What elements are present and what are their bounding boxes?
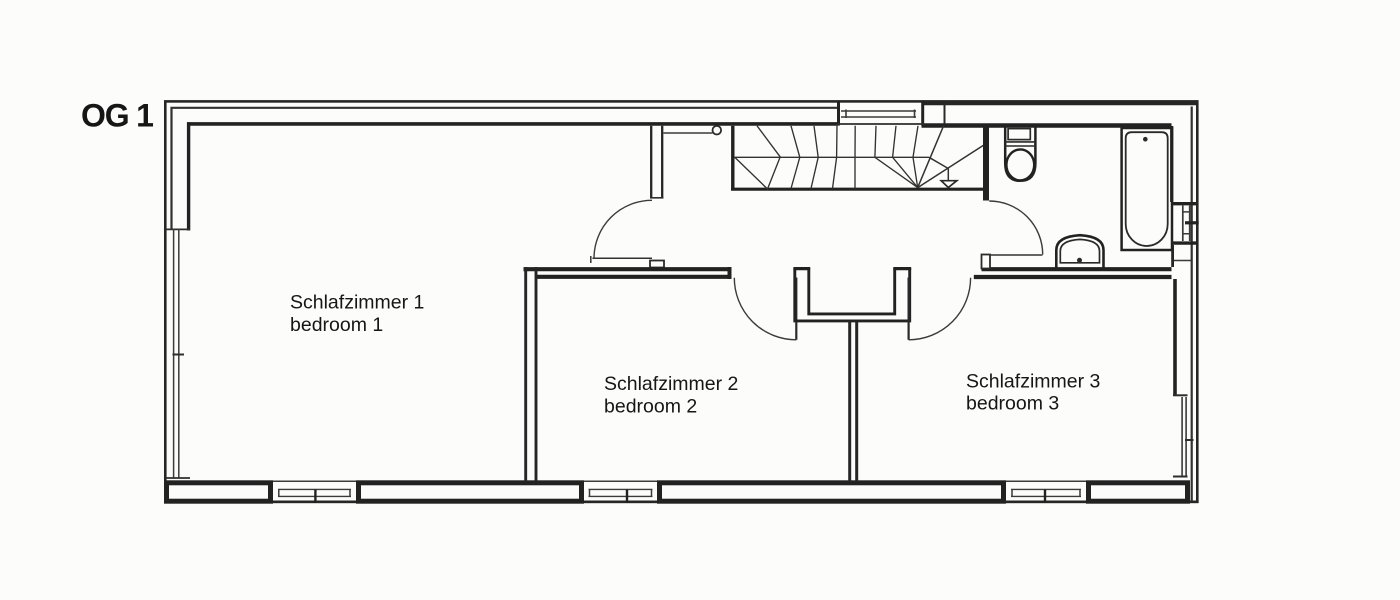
svg-text:bedroom 1: bedroom 1 xyxy=(290,314,383,336)
svg-text:bedroom 3: bedroom 3 xyxy=(966,393,1059,415)
svg-text:OG 1: OG 1 xyxy=(81,98,153,134)
svg-text:Schlafzimmer 3: Schlafzimmer 3 xyxy=(966,371,1100,393)
svg-text:Schlafzimmer 2: Schlafzimmer 2 xyxy=(604,373,738,395)
svg-text:Schlafzimmer 1: Schlafzimmer 1 xyxy=(290,292,424,314)
svg-text:bedroom 2: bedroom 2 xyxy=(604,395,697,417)
